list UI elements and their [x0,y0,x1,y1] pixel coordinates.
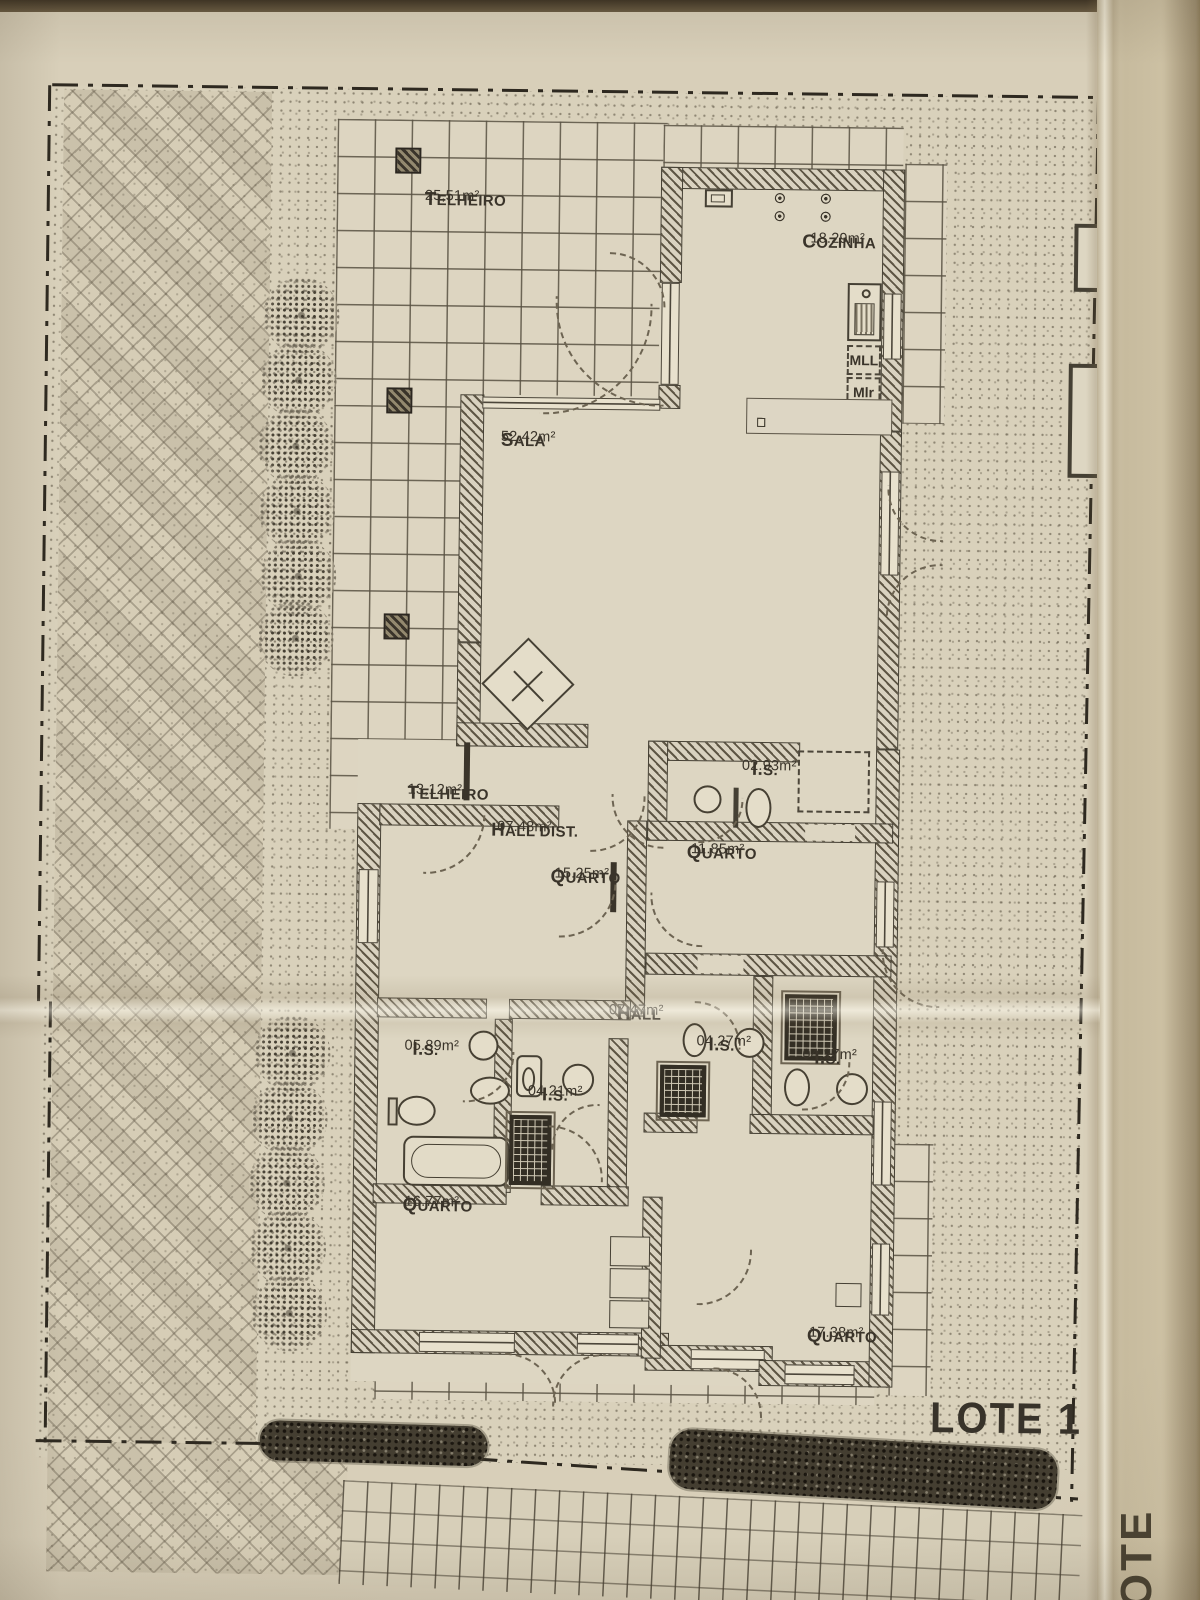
room-area: 07.47m² [609,1000,664,1021]
stove-icon [819,193,859,223]
kitchen-sink-icon [847,283,882,341]
closet-shelf [609,1300,649,1328]
room-area: 02.93m² [742,756,797,777]
room-area: 15.25m² [550,863,609,884]
adjacent-lot-label: LOTE 2 [1112,1509,1200,1600]
wardrobe [797,750,870,813]
wall-segment [645,953,891,978]
wall-segment [541,1185,629,1206]
paving-herringbone-left [48,89,273,1443]
lot-label: LOTE 1 [930,1394,1083,1444]
window [419,1332,515,1353]
site-plan: MLL Mlr [0,0,1200,1600]
room-area: 04.21m² [528,1081,583,1102]
hedge-icon [259,1420,488,1467]
toilet-icon [398,1096,436,1126]
stove-icon [773,192,813,222]
room-area: 17.38m² [807,1323,864,1344]
closet-shelf [610,1236,650,1266]
window [871,1243,890,1315]
shower-icon [509,1115,552,1186]
wall-segment [377,997,487,1018]
walkway-top-grid [663,125,904,172]
wall-segment [749,1114,873,1136]
room-area: 25,51m² [425,186,480,207]
door-opening [805,825,855,842]
dishwasher-label: MLL [847,345,881,375]
wall-segment [660,167,683,283]
shower-icon [660,1065,707,1118]
room-area: 16.77m² [402,1192,459,1213]
post-icon [383,613,409,639]
window [577,1334,639,1355]
walkway-right-upper-grid [902,164,947,424]
room-area: 04.27m² [802,1044,857,1065]
toilet-tank [388,1097,398,1125]
wall-segment [625,820,647,1016]
wall-segment [647,821,893,844]
post-icon [395,147,421,173]
column [835,1283,861,1307]
window [883,293,902,359]
wall-segment [661,167,905,192]
window [358,869,379,943]
walkway-right-lower-grid [888,1144,933,1396]
closet-shelf [609,1268,649,1298]
room-area: 04.27m² [696,1031,751,1052]
wall-segment [457,394,484,642]
room-area: 05.89m² [404,1036,459,1057]
wall-segment [607,1038,629,1196]
window [691,1349,765,1370]
room-area: 11.85m² [687,839,745,860]
window [876,881,895,947]
post-icon [386,387,412,413]
room-area: 07.48m² [491,817,552,838]
window [784,1364,854,1385]
page-right-margin [1097,0,1200,1600]
door-icon [705,189,733,207]
room-area: 52.42m² [501,427,556,448]
paving-herringbone-corner [46,1441,348,1575]
counter [746,398,892,436]
door-opening [697,955,743,974]
window [873,1101,892,1185]
room-area: 18.29m² [802,228,865,249]
bathtub-icon [403,1136,510,1187]
floor-plan-photo: MLL Mlr [0,0,1200,1600]
room-area: 13,12m² [408,780,463,801]
